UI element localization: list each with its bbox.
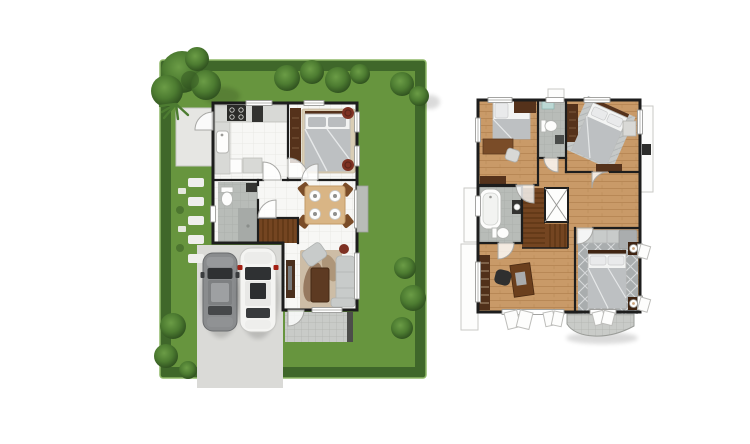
pouf [342, 107, 354, 119]
car-mirror [201, 272, 205, 278]
toilet [541, 120, 557, 132]
kitchen-sink [217, 131, 229, 153]
tree [274, 65, 300, 91]
tree [185, 47, 209, 71]
patio-side-wall [347, 312, 353, 342]
tree [151, 75, 183, 107]
shrub [400, 285, 426, 311]
floor-plan-canvas [0, 0, 750, 444]
sunroof [250, 283, 266, 299]
toilet [492, 228, 509, 239]
shrub [179, 361, 197, 379]
white-car [238, 248, 279, 332]
dresser [596, 164, 622, 172]
balcony-door-flap [601, 310, 615, 325]
fridge [230, 159, 242, 173]
red-mirror [238, 265, 243, 270]
tree [409, 86, 429, 106]
kitchen-island [243, 158, 262, 173]
tree [325, 67, 351, 93]
toilet [221, 187, 233, 206]
master-bedroom [578, 230, 639, 314]
bathroom [218, 182, 258, 243]
bathtub [480, 189, 501, 229]
shower-drain [555, 135, 564, 144]
red-mirror [274, 265, 279, 270]
kitchen-cabinet [252, 105, 263, 122]
vanity-basin [512, 200, 522, 214]
staircase [258, 218, 298, 243]
shrub [154, 344, 178, 368]
tree [350, 64, 370, 84]
kitchen-counter [215, 105, 288, 122]
stove [227, 105, 246, 121]
floor-plan-render [0, 0, 750, 444]
nightstand [623, 121, 636, 136]
bathroom-vanity [246, 183, 257, 192]
air-conditioner-unit [642, 144, 651, 155]
stair-void [545, 188, 568, 222]
window-planter-box [357, 186, 368, 232]
shrub [394, 257, 416, 279]
coffee-table [311, 268, 329, 302]
side-table-cushion [339, 244, 349, 254]
master-bed [588, 250, 626, 308]
work-desk [510, 263, 534, 297]
pouf [342, 159, 354, 171]
door-flap [551, 311, 564, 327]
ground-floor-plan [151, 47, 440, 388]
shrub [391, 317, 413, 339]
upper-floor-plan [461, 89, 653, 344]
tv-console [286, 260, 295, 298]
dresser [480, 176, 506, 184]
closet [514, 101, 536, 113]
bedroom-wardrobe [290, 108, 301, 163]
tree [300, 60, 324, 84]
shrub [160, 313, 186, 339]
dark-sedan [201, 253, 240, 331]
